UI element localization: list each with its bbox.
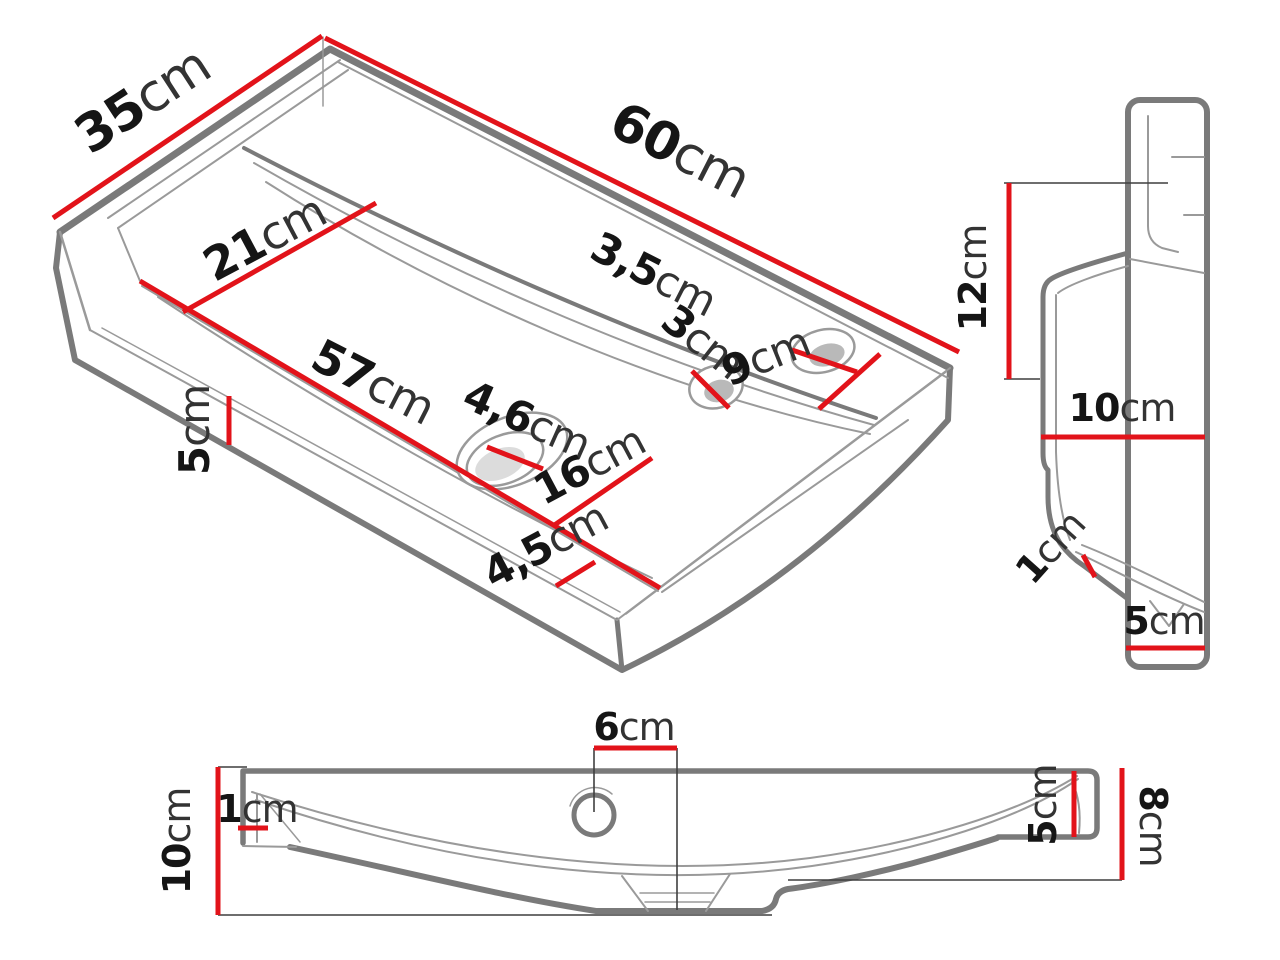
dim-label-6cm: 6cm bbox=[593, 705, 674, 749]
dim-label-12cm: 12cm bbox=[951, 225, 995, 332]
dim-label-60cm: 60cm bbox=[600, 91, 759, 211]
dim-label-10cm-front: 10cm bbox=[155, 788, 199, 895]
dim-label-5cm-side: 5cm bbox=[1123, 599, 1204, 643]
front-drain-funnel bbox=[622, 874, 730, 911]
side-back-panel-fill bbox=[1128, 100, 1207, 667]
front-faucet-hole bbox=[570, 788, 614, 835]
dim-label-5cm-edge: 5cm bbox=[170, 385, 219, 475]
dim-label-8cm: 8cm bbox=[1131, 785, 1175, 866]
front-top-outline bbox=[243, 771, 1097, 843]
side-profile-view: 12cm 10cm 1cm 5cm bbox=[951, 100, 1207, 667]
dim-label-1cm-front: 1cm bbox=[216, 787, 297, 831]
drawing-canvas: 35cm 60cm 21cm 57cm 5cm 3cm 3,5cm 9cm 4,… bbox=[0, 0, 1280, 960]
front-corner-edge bbox=[617, 620, 622, 670]
dim-label-10cm-side: 10cm bbox=[1069, 386, 1176, 430]
washbasin-technical-drawing: 35cm 60cm 21cm 57cm 5cm 3cm 3,5cm 9cm 4,… bbox=[0, 0, 1280, 960]
front-section-view: 10cm 1cm 6cm 5cm 8cm bbox=[155, 705, 1175, 915]
dim-label-5cm-front: 5cm bbox=[1021, 764, 1065, 845]
front-left-bottom bbox=[243, 846, 296, 847]
isometric-view: 35cm 60cm 21cm 57cm 5cm 3cm 3,5cm 9cm 4,… bbox=[53, 35, 959, 670]
